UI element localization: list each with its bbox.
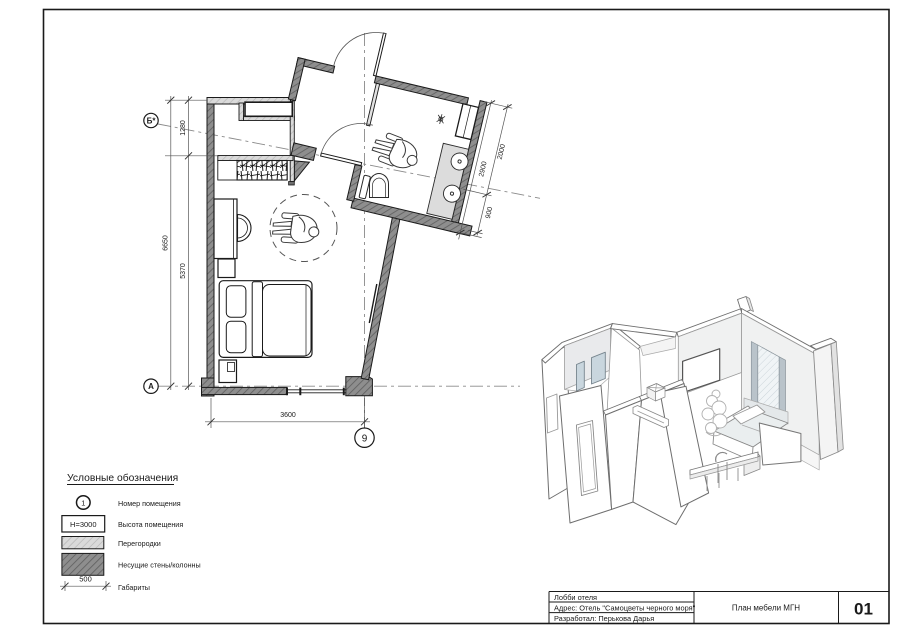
svg-text:1280: 1280 — [180, 120, 187, 136]
svg-text:500: 500 — [79, 575, 92, 584]
svg-text:Номер помещения: Номер помещения — [118, 499, 181, 508]
svg-text:Б*: Б* — [147, 117, 157, 126]
svg-text:Несущие стены/колонны: Несущие стены/колонны — [118, 561, 201, 570]
svg-text:Лобби отеля: Лобби отеля — [554, 593, 597, 602]
svg-text:H=3000: H=3000 — [70, 520, 96, 529]
svg-text:Разработал: Перькова Дарья: Разработал: Перькова Дарья — [554, 614, 654, 623]
svg-text:Адрес: Отель "Самоцветы черног: Адрес: Отель "Самоцветы черного моря" — [554, 603, 696, 612]
svg-text:1: 1 — [81, 499, 85, 508]
svg-text:А: А — [148, 382, 154, 391]
svg-text:6650: 6650 — [163, 235, 170, 251]
svg-text:План мебели МГН: План мебели МГН — [732, 603, 800, 612]
svg-text:Высота помещения: Высота помещения — [118, 520, 183, 529]
svg-text:Условные обозначения: Условные обозначения — [67, 472, 178, 484]
svg-text:9: 9 — [362, 434, 368, 445]
svg-text:Перегородки: Перегородки — [118, 539, 161, 548]
svg-text:01: 01 — [854, 600, 873, 619]
svg-text:3600: 3600 — [280, 412, 296, 419]
svg-text:5370: 5370 — [180, 263, 187, 279]
svg-text:Габариты: Габариты — [118, 583, 150, 592]
